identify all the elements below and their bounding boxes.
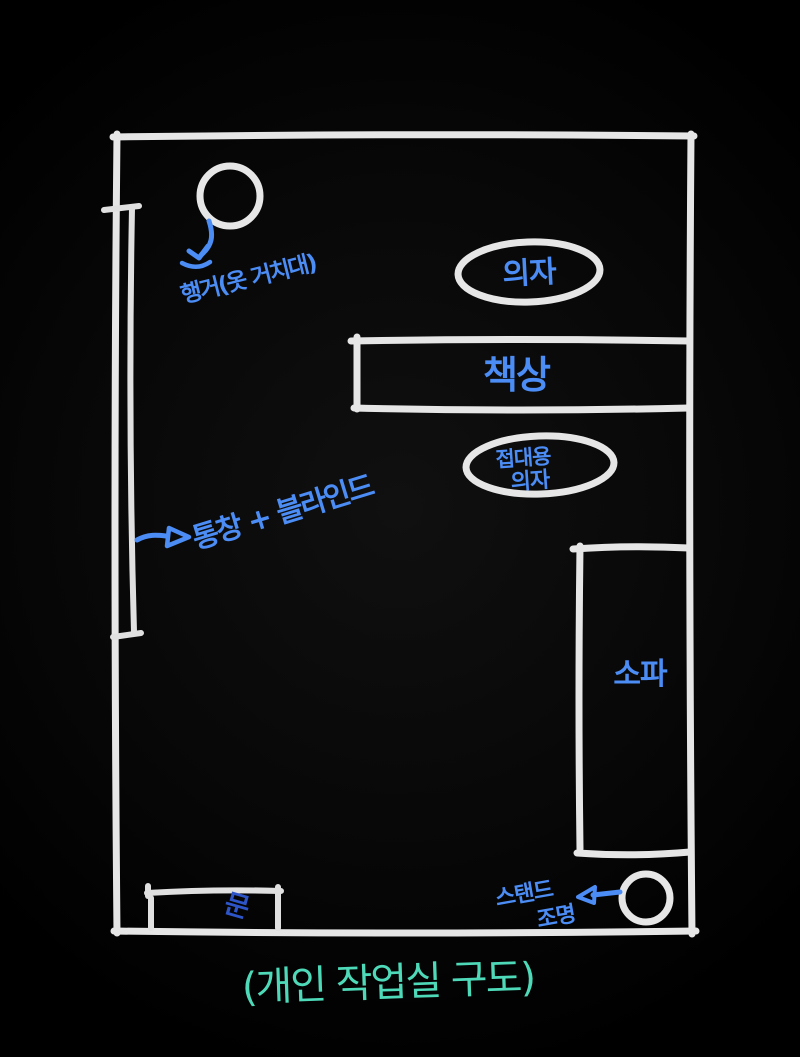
wall-right xyxy=(690,134,692,934)
caption-title: (개인 작업실 구도) xyxy=(241,955,535,1011)
window-line xyxy=(130,208,134,632)
desk-label: 책상 xyxy=(483,353,551,397)
hanger-circle xyxy=(200,166,260,226)
lamp-circle xyxy=(622,874,670,922)
window-shape xyxy=(104,206,141,637)
wall-left xyxy=(115,134,117,933)
wall-top xyxy=(113,135,694,137)
floor-plan-drawing: 행거(옷 거치대) 의자 책상 접대용 의자 통창 + 블라인드 소파 xyxy=(0,0,800,1057)
sofa-shape xyxy=(573,546,690,855)
window-bottom-cap xyxy=(113,633,141,637)
floor-plan-canvas: 행거(옷 거치대) 의자 책상 접대용 의자 통창 + 블라인드 소파 xyxy=(0,0,800,1057)
door-label: 문 xyxy=(221,888,253,925)
hanger-arrow-icon xyxy=(182,221,212,267)
lamp-label-line2: 조명 xyxy=(535,902,577,933)
door-shape xyxy=(147,886,281,928)
lamp-arrow-icon xyxy=(578,887,620,903)
guest-chair-label-line2: 의자 xyxy=(510,468,552,496)
window-arrow-icon xyxy=(137,528,189,546)
wall-bottom xyxy=(114,931,696,933)
window-label: 통창 + 블라인드 xyxy=(188,468,378,555)
chair-label: 의자 xyxy=(502,255,558,293)
sofa-label: 소파 xyxy=(613,657,668,692)
